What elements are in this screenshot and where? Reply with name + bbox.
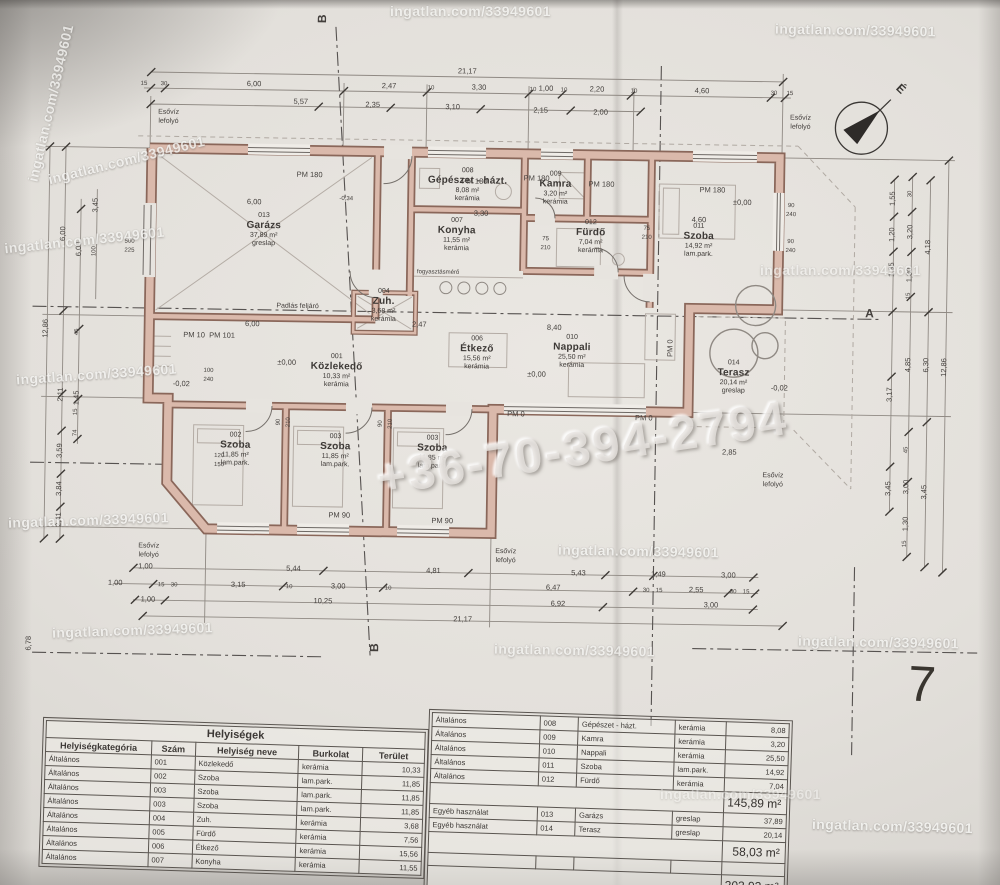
table-cell: Szám bbox=[151, 741, 195, 756]
table-cell: kerámia bbox=[295, 857, 359, 873]
compass-icon bbox=[816, 82, 907, 173]
table-cell: 013 bbox=[537, 807, 576, 822]
table-cell: 004 bbox=[149, 811, 193, 826]
table-cell: Általános bbox=[42, 849, 148, 866]
north-compass: É bbox=[816, 82, 907, 173]
table-cell: 005 bbox=[149, 825, 193, 840]
table-cell: 006 bbox=[148, 839, 192, 854]
table-cell: 009 bbox=[539, 730, 578, 745]
room-schedule-table-continued: Általános008Gépészet - házt.kerámia8,08Á… bbox=[427, 712, 790, 885]
table-cell: 003 bbox=[150, 797, 194, 812]
table-cell: 008 bbox=[540, 716, 579, 731]
table-cell: 001 bbox=[151, 755, 195, 770]
table-cell: 012 bbox=[538, 772, 577, 787]
garage-cross bbox=[155, 154, 371, 313]
table-cell: 11,55 bbox=[359, 859, 421, 875]
scanned-floor-plan-photo: 21,1715306,002,473,301,002,204,601010101… bbox=[0, 0, 1000, 885]
table-cell: 003 bbox=[150, 783, 194, 798]
table-cell: 011 bbox=[539, 758, 578, 773]
table-cell: Konyha bbox=[192, 854, 296, 871]
door-openings bbox=[139, 141, 659, 419]
room-schedule-table: Helyiségek HelyiségkategóriaSzámHelyiség… bbox=[41, 720, 425, 876]
subtotal-other: 58,03 m² bbox=[722, 841, 786, 864]
boiler bbox=[495, 183, 511, 199]
page-number: 7 bbox=[907, 654, 938, 713]
terrace-trees bbox=[710, 285, 779, 378]
table-cell: 002 bbox=[150, 769, 194, 784]
shower-cross bbox=[357, 296, 411, 329]
bathtub bbox=[556, 228, 601, 267]
subtotal-general: 145,89 m² bbox=[723, 792, 787, 815]
total-area: 203,92 m² bbox=[721, 875, 785, 885]
table-cell bbox=[536, 856, 575, 870]
table-cell: 010 bbox=[539, 744, 578, 759]
table-cell: 014 bbox=[537, 821, 576, 836]
kitchen-counter bbox=[410, 276, 523, 278]
hob-circles bbox=[440, 282, 506, 295]
table-cell: 007 bbox=[148, 853, 192, 868]
